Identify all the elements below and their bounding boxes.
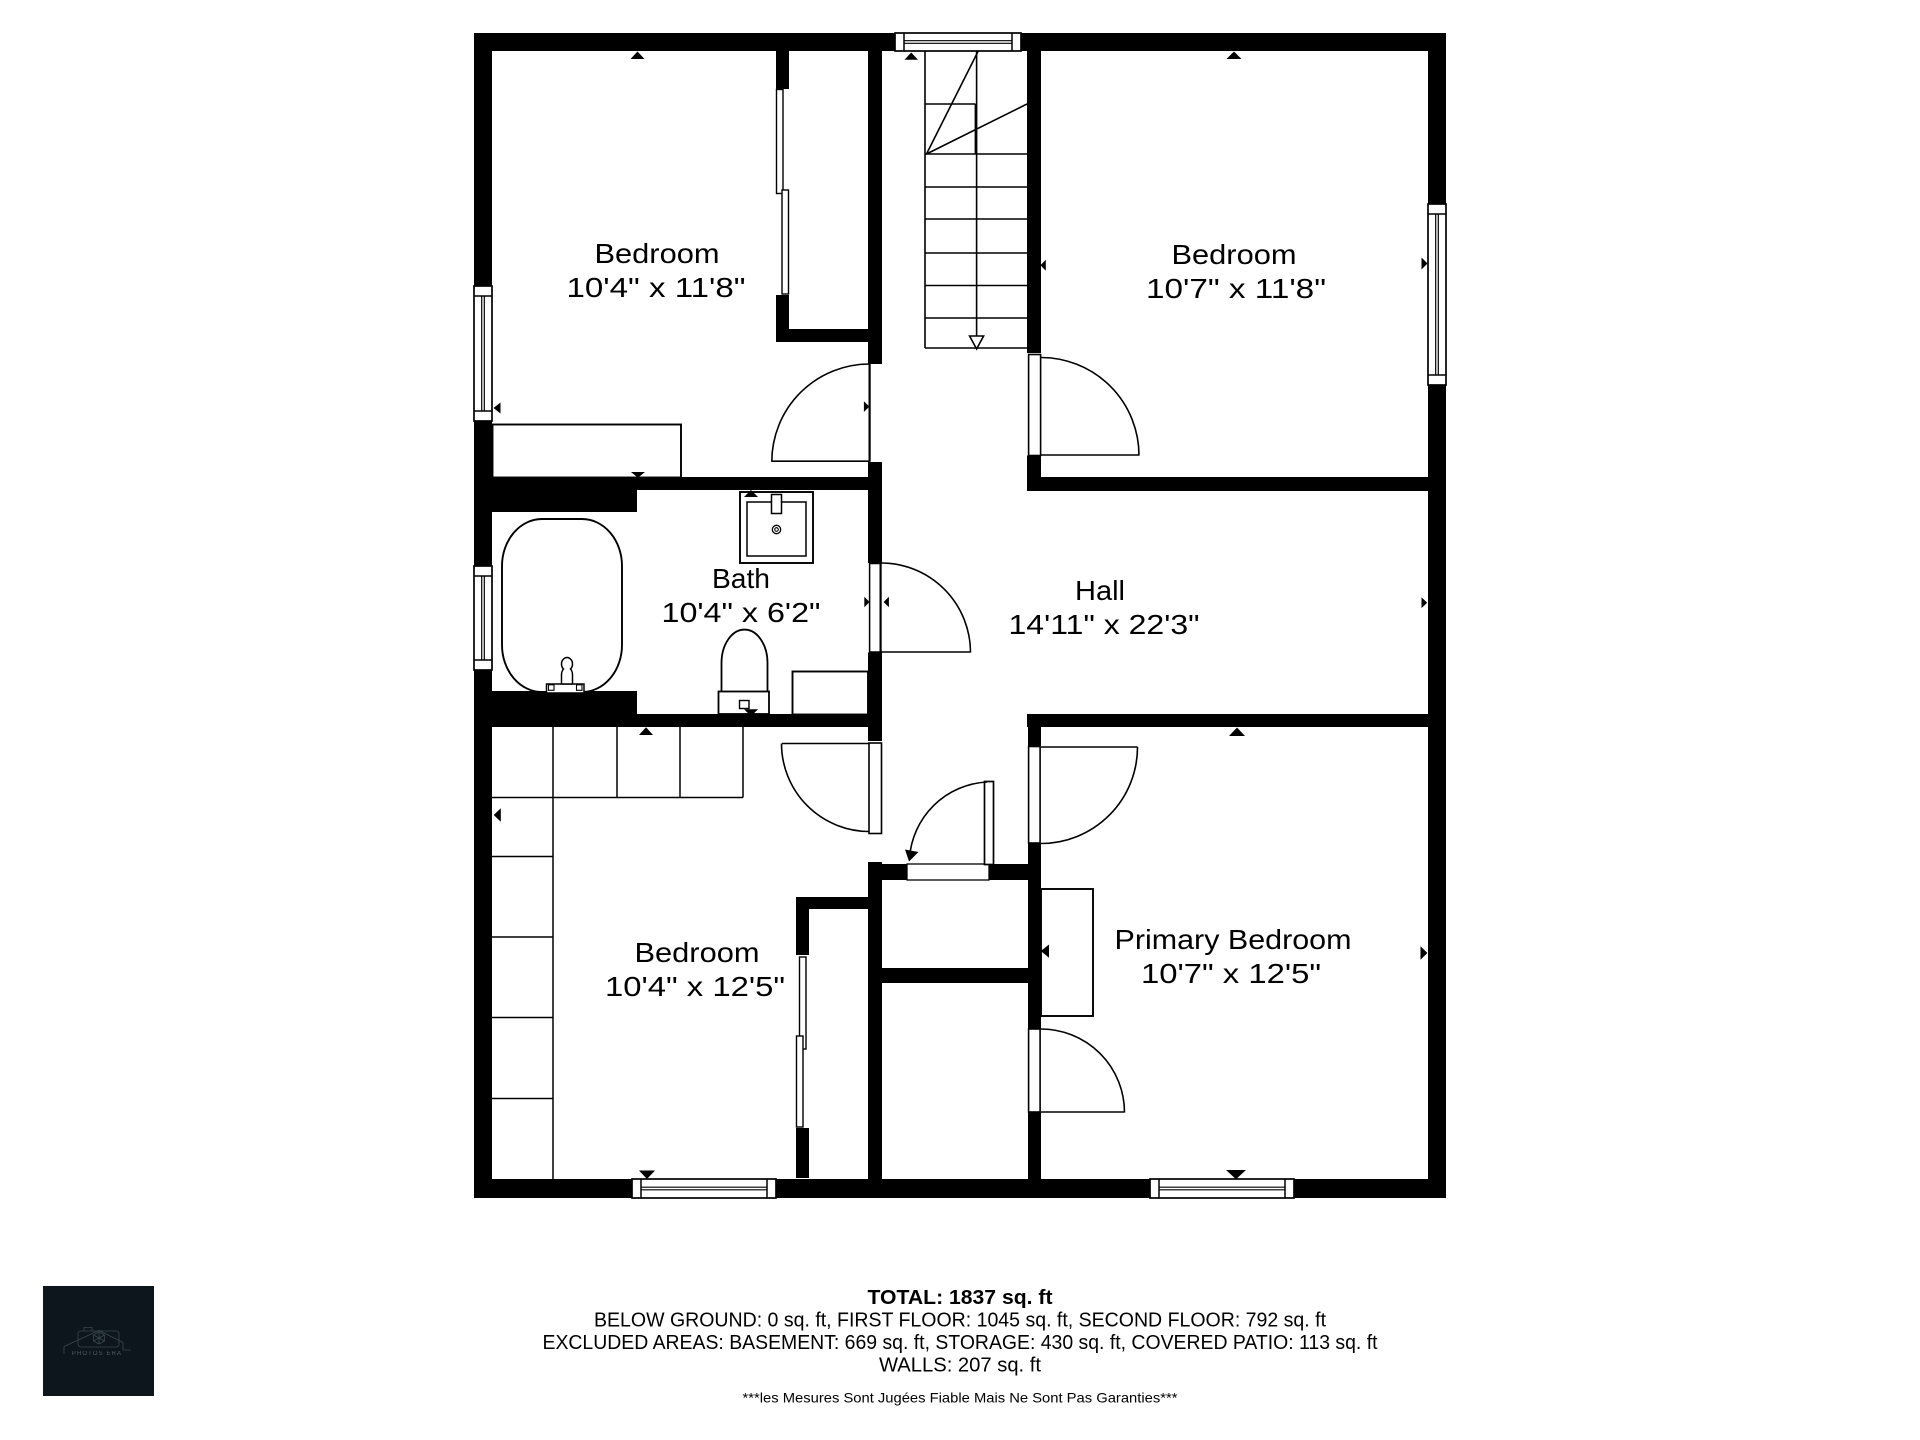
- svg-text:Bedroom: Bedroom: [595, 238, 720, 269]
- svg-text:Bath: Bath: [712, 563, 770, 594]
- svg-text:10'4" x 12'5": 10'4" x 12'5": [605, 971, 785, 1002]
- svg-text:14'11" x 22'3": 14'11" x 22'3": [1009, 609, 1200, 640]
- svg-text:***les Mesures Sont Jugées Fia: ***les Mesures Sont Jugées Fiable Mais N…: [743, 1390, 1179, 1406]
- svg-text:10'4" x 6'2": 10'4" x 6'2": [662, 597, 821, 628]
- svg-text:EXCLUDED AREAS: BASEMENT: 669: EXCLUDED AREAS: BASEMENT: 669 sq. ft, ST…: [543, 1332, 1378, 1354]
- svg-text:10'7" x 12'5": 10'7" x 12'5": [1141, 958, 1321, 989]
- svg-text:Primary Bedroom: Primary Bedroom: [1115, 924, 1352, 955]
- svg-text:10'4" x 11'8": 10'4" x 11'8": [567, 272, 746, 303]
- svg-text:Hall: Hall: [1075, 575, 1125, 606]
- svg-text:Bedroom: Bedroom: [1172, 239, 1297, 270]
- svg-text:TOTAL: 1837 sq. ft: TOTAL: 1837 sq. ft: [868, 1287, 1053, 1309]
- svg-text:Bedroom: Bedroom: [635, 937, 760, 968]
- svg-text:10'7" x 11'8": 10'7" x 11'8": [1146, 273, 1326, 304]
- svg-text:WALLS: 207 sq. ft: WALLS: 207 sq. ft: [879, 1355, 1041, 1377]
- svg-text:BELOW GROUND: 0 sq. ft, FIRST: BELOW GROUND: 0 sq. ft, FIRST FLOOR: 104…: [594, 1310, 1326, 1332]
- svg-text:PHOTOS ERA: PHOTOS ERA: [72, 1351, 122, 1357]
